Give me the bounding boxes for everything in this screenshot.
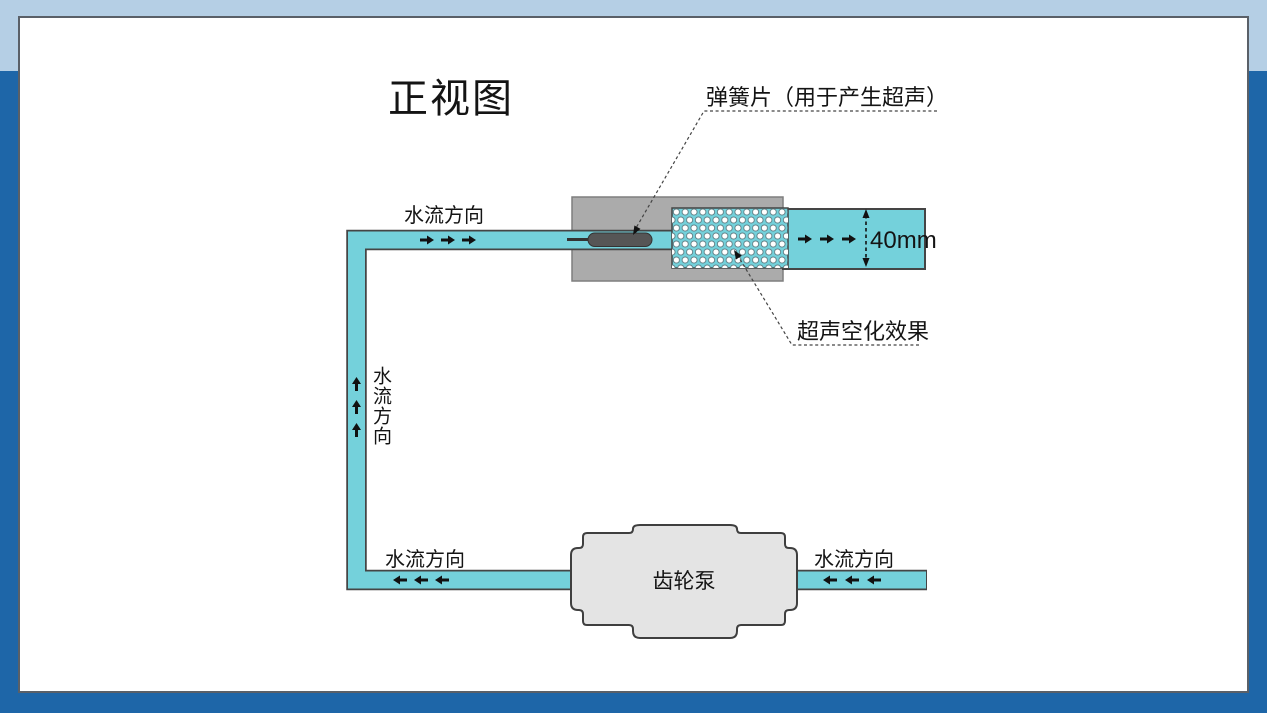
- front-view-title: 正视图: [388, 77, 514, 121]
- flow-direction-label-bottom-right: 水流方向: [814, 548, 894, 571]
- flow-direction-label-bottom-left: 水流方向: [385, 548, 465, 571]
- flow-direction-label-vertical: 水流方向: [367, 366, 391, 456]
- gear-pump-label: 齿轮泵: [653, 570, 716, 593]
- cavitation-bubble-region: [672, 208, 788, 268]
- spring-plate-label: 弹簧片（用于产生超声）: [706, 85, 948, 110]
- cavitation-label: 超声空化效果: [797, 319, 929, 344]
- flow-direction-label-top: 水流方向: [404, 204, 484, 227]
- diagram-svg: 正视图 弹簧片（用于产生超声） 超声空化效果 40mm 齿轮泵 水流方向 水流方…: [0, 0, 1267, 713]
- dimension-label: 40mm: [870, 227, 937, 254]
